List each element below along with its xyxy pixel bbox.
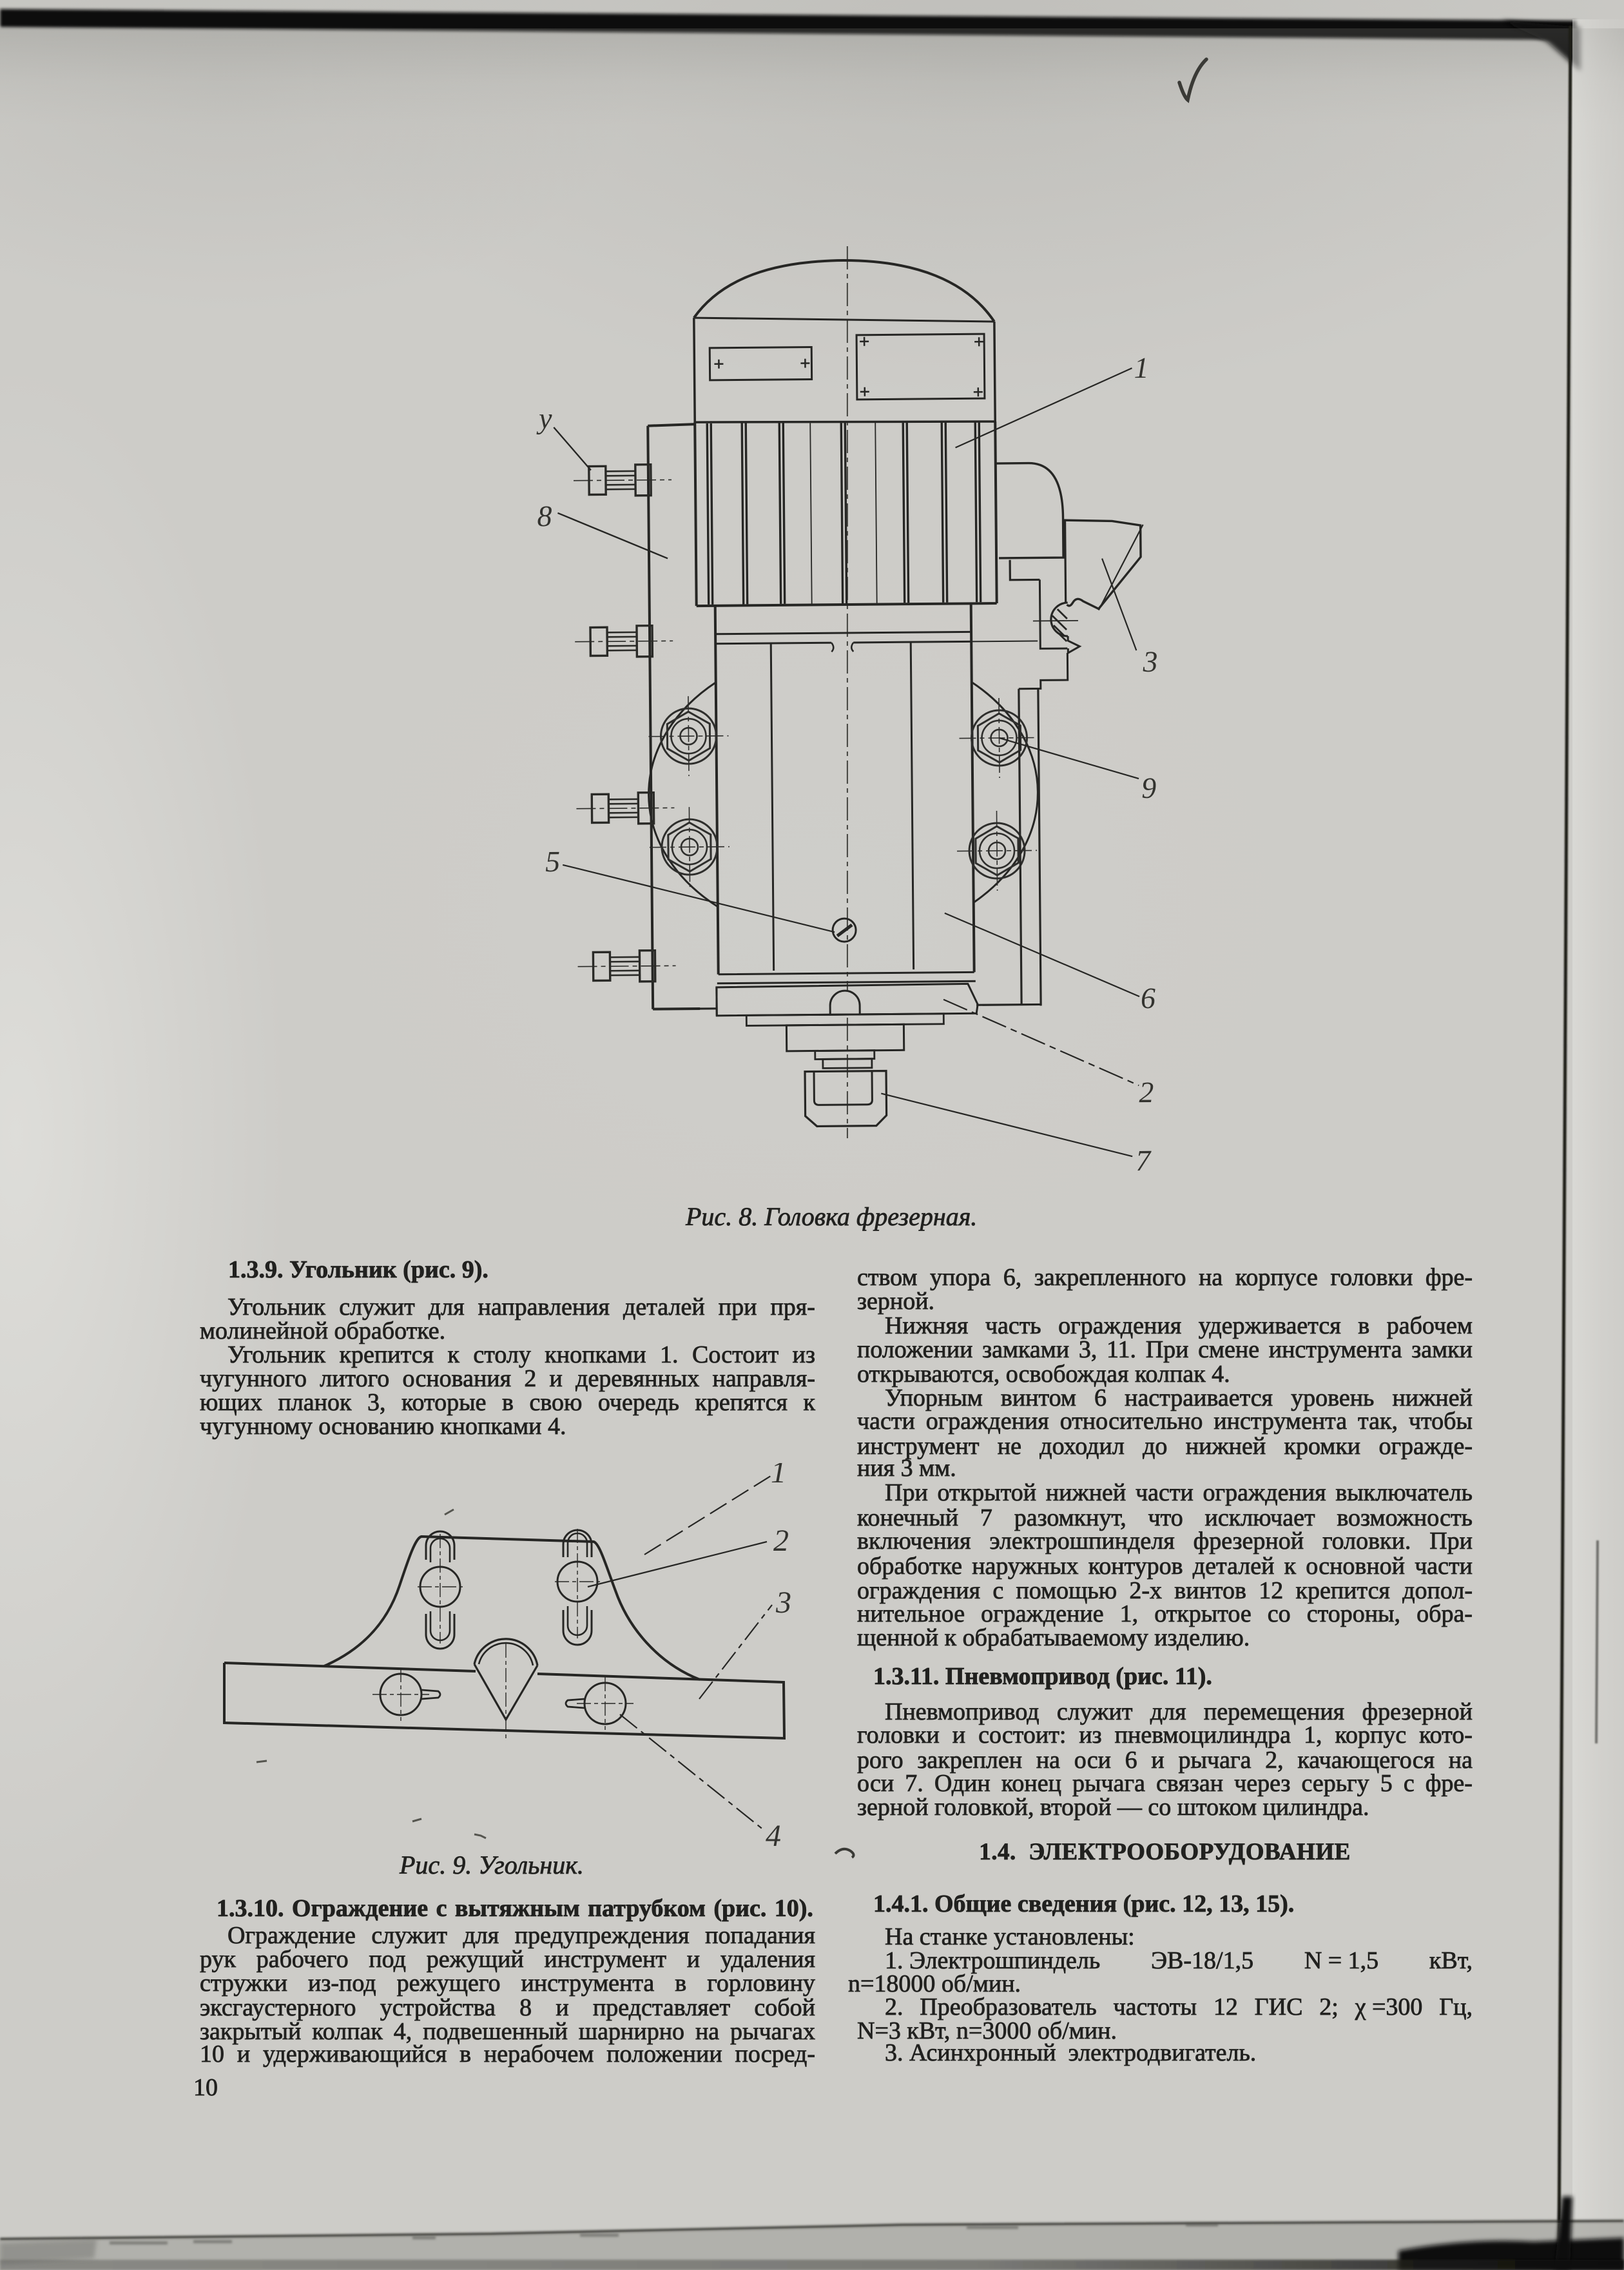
svg-text:4: 4 [766,1819,781,1850]
svg-text:1: 1 [1134,351,1148,384]
svg-text:y: y [536,402,552,434]
svg-text:5: 5 [545,845,560,878]
svg-text:6: 6 [1141,982,1155,1014]
svg-text:2: 2 [1139,1076,1154,1109]
svg-text:1: 1 [771,1463,786,1489]
svg-text:3: 3 [775,1586,791,1620]
svg-text:7: 7 [1136,1144,1152,1177]
svg-text:9: 9 [1141,771,1156,804]
svg-text:2: 2 [773,1524,789,1558]
svg-text:3: 3 [1142,645,1157,678]
svg-text:8: 8 [537,500,552,532]
